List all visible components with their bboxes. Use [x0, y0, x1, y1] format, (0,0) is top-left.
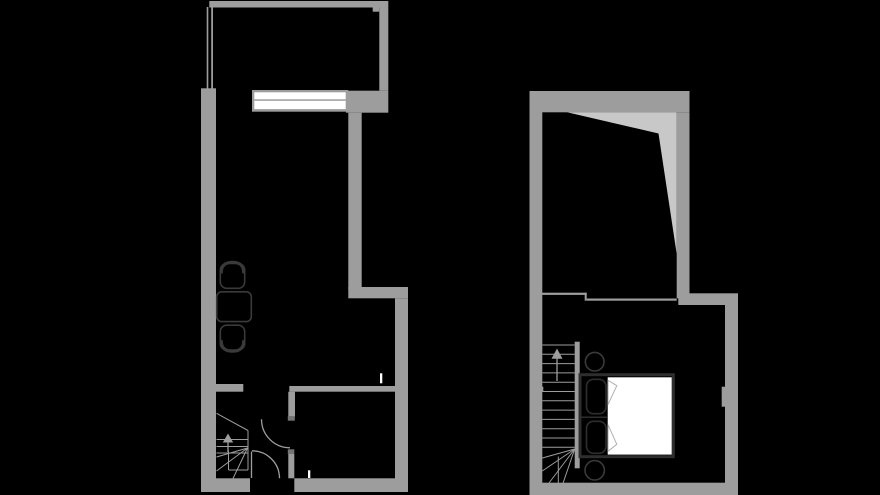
roof-slope-area: [567, 112, 677, 254]
terrace-edge-line: [211, 7, 213, 89]
wall-segment: [294, 478, 408, 492]
wall-segment: [348, 287, 408, 298]
wall-segment: [346, 91, 388, 113]
door-jamb-tick: [308, 470, 310, 478]
pillow-bottom: [587, 421, 607, 453]
floor-plan-left: [201, 1, 408, 492]
pillow-top: [587, 379, 607, 413]
room-door: [262, 419, 291, 448]
dining-chair-bottom: [220, 325, 244, 351]
bedside-table-top: [585, 352, 604, 371]
wall-segment: [725, 293, 738, 495]
wall-segment: [530, 91, 690, 112]
door-jamb: [288, 416, 295, 421]
wall-segment: [379, 8, 388, 91]
floor-plan-right: [530, 91, 739, 495]
door-jamb-tick: [380, 373, 382, 383]
door-jamb: [288, 449, 295, 454]
wall-nub: [722, 387, 725, 407]
wall-segment: [288, 454, 294, 478]
walls-left: [201, 1, 408, 492]
wall-segment: [373, 8, 380, 12]
staircase-left: [217, 413, 249, 478]
up-arrow-icon: [552, 349, 563, 382]
terrace-edge-line: [207, 7, 209, 89]
wall-segment: [678, 293, 725, 305]
wall-segment: [348, 113, 361, 290]
wall-segment: [395, 298, 408, 491]
staircase-right: [542, 345, 574, 492]
wall-segment: [209, 1, 388, 8]
window-unit: [254, 101, 345, 109]
up-arrow-icon: [223, 434, 233, 453]
railing-divider: [585, 293, 587, 301]
floor-plan-svg: [0, 0, 880, 495]
wall-nub: [538, 397, 541, 402]
wall-segment: [677, 112, 690, 298]
wall-segment: [289, 386, 395, 392]
railing-divider: [542, 293, 587, 295]
wall-segment: [201, 88, 216, 492]
floor-plan-canvas: [0, 0, 880, 495]
railing-divider: [587, 299, 677, 301]
dining-chair-top: [220, 262, 244, 288]
bedside-table-bottom: [585, 461, 604, 480]
wall-nub: [538, 387, 543, 392]
wall-segment: [288, 392, 295, 417]
double-bed: [580, 375, 673, 457]
mattress: [608, 377, 672, 454]
wall-segment: [530, 91, 543, 495]
window-unit: [254, 92, 345, 99]
dining-table: [217, 292, 252, 322]
entry-door: [252, 451, 280, 479]
wall-segment: [216, 384, 243, 392]
wall-segment: [205, 478, 250, 492]
